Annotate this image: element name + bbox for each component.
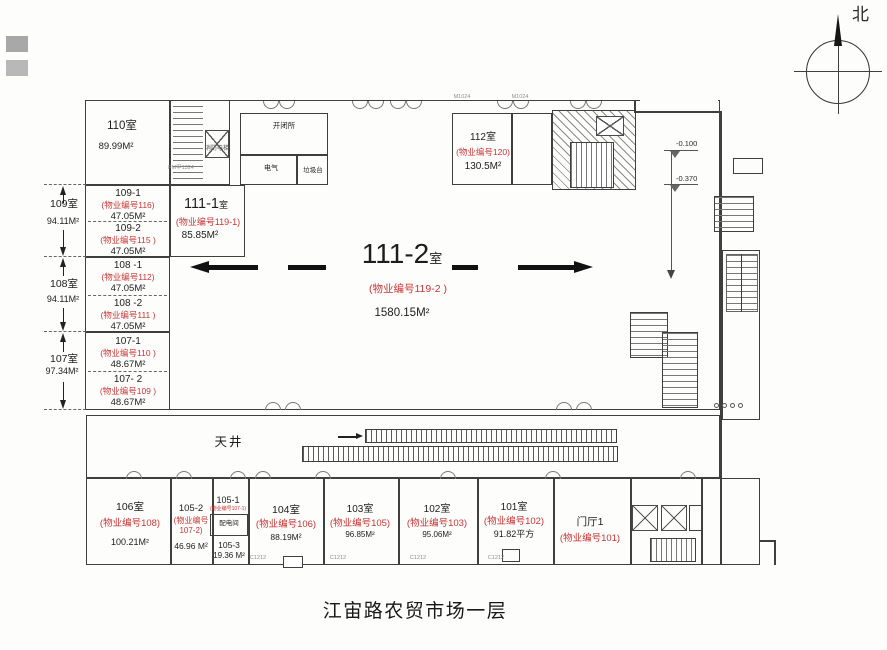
shop-divider: [248, 478, 250, 565]
room-108-2-prop: (物业编号111 ): [101, 311, 156, 320]
room-102-area: 95.06M²: [422, 531, 451, 539]
room-110-name: 110室: [107, 121, 137, 133]
dim-tick: [44, 184, 86, 185]
room-101-name: 101室: [501, 503, 528, 513]
door-code: C1212: [410, 556, 426, 562]
door-code: C1212: [488, 556, 504, 562]
dim-tick: [44, 331, 86, 332]
room-111-1-name: 111-1室: [184, 196, 228, 212]
canopy-arrowhead: [356, 433, 363, 439]
shop-divider: [398, 478, 400, 565]
step-line: [760, 540, 775, 542]
hall-arrow-shaft: [208, 265, 258, 270]
courtyard-label: 天井: [214, 436, 243, 449]
room-102-name: 102室: [424, 505, 451, 515]
shop-divider: [323, 478, 325, 565]
elevator-shaft: [661, 505, 687, 531]
level-minus-0100: -0.100: [676, 140, 697, 148]
room-103-name: 103室: [347, 505, 374, 515]
restroom-stalls-upper: [726, 254, 758, 312]
elevator-shaft: [632, 505, 658, 531]
hall-suffix: 室: [429, 251, 442, 266]
room-108-2-area: 47.05M²: [111, 322, 146, 332]
room-105-2-prop-l2: 107-2): [179, 527, 202, 535]
lobby-prop: (物业编号101): [560, 534, 620, 544]
room-109-1-name: 109-1: [115, 189, 141, 199]
electrical-label: 电气: [264, 165, 278, 172]
north-compass: 北: [790, 0, 887, 125]
page-title: 江宙路农贸市场一层: [323, 602, 508, 621]
elevator-shaft: [205, 130, 229, 158]
side-dim-108-room: 108室: [50, 279, 78, 290]
room-109-2-prop: (物业编号115 ): [100, 236, 156, 245]
shop-divider: [170, 478, 172, 565]
room-105-3-area: 19.36 M²: [213, 552, 245, 560]
dim-arrow-line: [63, 382, 64, 402]
level-minus-0370: -0.370: [676, 175, 697, 183]
side-dim-108-area: 94.11M²: [47, 295, 79, 304]
door-code: C1212: [330, 556, 346, 562]
room-109-2-area: 47.05M²: [111, 247, 146, 257]
compass-horizontal-line: [794, 71, 882, 72]
room-105-2-prop-l1: (物业编号: [174, 517, 209, 525]
room-108-1-name: 108 -1: [114, 261, 142, 271]
canopy-strip-lower: [302, 446, 618, 462]
room-112-annex-outline: [512, 113, 552, 185]
entry-vestibule-box: [283, 556, 303, 568]
room-107-1-name: 107-1: [115, 337, 141, 347]
side-dim-107-room: 107室: [50, 354, 78, 365]
room-111-1-prop: (物业编号119-1): [176, 218, 240, 227]
room-108-divider: [88, 295, 167, 296]
hall-arrow-left-icon: [190, 261, 209, 273]
distribution-label: 配电间: [219, 521, 239, 528]
small-box-101: [502, 549, 520, 562]
dimension-leader: [671, 150, 672, 272]
level-mark-triangle: [670, 151, 680, 158]
level-mark-triangle: [670, 185, 680, 192]
room-107-2-prop: (物业编号109 ): [100, 387, 156, 396]
room-105-1-prop: (物业编号107-1): [210, 507, 246, 512]
top-right-wall: [634, 111, 722, 113]
hall-arrow-shaft: [518, 265, 574, 270]
dim-arrow-down: [60, 400, 66, 409]
room-106-area: 100.21M²: [111, 538, 149, 547]
hall-arrow-right-icon: [574, 261, 593, 273]
dim-tick: [44, 409, 86, 410]
room-107-divider: [88, 371, 167, 372]
room-104-name: 104室: [272, 505, 300, 516]
exterior-stair-topright: [714, 196, 754, 232]
canopy-strip-upper: [365, 429, 617, 443]
room-107-1-area: 48.67M²: [111, 360, 146, 370]
room-108-2-name: 108 -2: [114, 299, 142, 309]
hall-number: 111-2: [362, 238, 429, 269]
room-104-area: 88.19M²: [270, 533, 301, 542]
hall-area: 1580.15M²: [375, 308, 430, 320]
room-107-2-area: 48.67M²: [111, 398, 146, 408]
room-101-area: 91.82平方: [494, 530, 535, 539]
room-111-1-area: 85.85M²: [182, 231, 219, 241]
room-108-1-prop: (物业编号112): [101, 273, 154, 282]
stair-in-block: [570, 142, 614, 188]
room-108-1-area: 47.05M²: [111, 284, 146, 294]
bottom-right-stair: [650, 538, 696, 562]
room-107-2-name: 107- 2: [114, 375, 142, 385]
room-109-2-name: 109-2: [115, 224, 141, 234]
shop-divider: [477, 478, 479, 565]
door-code: C1212: [250, 556, 266, 562]
hall-arrow-dash: [288, 265, 326, 270]
room-105-2-area: 46.96 M²: [174, 542, 208, 551]
floor-plan-canvas: 北: [0, 0, 887, 650]
door-code: FM甲1324: [168, 166, 194, 172]
bottom-right-block-outline: [702, 478, 760, 565]
duct-shaft: [596, 116, 624, 136]
wall-patch: [640, 96, 718, 110]
hall-arrow-dash: [452, 265, 478, 270]
fire-elevator-label: 消防电梯: [205, 146, 229, 152]
room-112-name: 112室: [470, 133, 496, 143]
north-arrow-icon: [834, 14, 842, 46]
room-103-prop: (物业编号105): [330, 519, 390, 529]
room-103-area: 96.85M²: [345, 531, 374, 539]
dim-arrow-line: [63, 340, 64, 352]
step-line: [774, 540, 776, 565]
room-107-1-prop: (物业编号110 ): [100, 349, 156, 358]
side-dim-109-room: 109室: [50, 199, 78, 210]
shop-divider: [553, 478, 555, 565]
room-111-1-number: 111-1: [184, 196, 219, 212]
switch-station-label: 开闭所: [273, 122, 296, 130]
dim-tick: [44, 256, 86, 257]
room-106-prop: (物业编号108): [100, 519, 160, 529]
lobby-name: 门厅1: [577, 517, 604, 528]
side-dim-109-area: 94.11M²: [47, 217, 79, 226]
hall-name: 111-2室: [362, 240, 442, 268]
door-code: M1024: [512, 95, 529, 101]
shaft-box: [689, 505, 702, 531]
leader-arrowhead: [667, 270, 675, 279]
stall-divider: [741, 254, 742, 312]
room-111-1-suffix: 室: [219, 200, 228, 210]
dim-arrow-down: [60, 247, 66, 256]
room-105-3-name: 105-3: [218, 541, 240, 550]
switch-station-outline: [240, 113, 328, 155]
room-109-1-prop: (物业编号116): [101, 201, 154, 210]
room-110-area: 89.99M²: [99, 142, 134, 152]
restroom-stalls-mid: [662, 332, 698, 408]
hall-prop: (物业编号119-2 ): [369, 284, 447, 295]
room-101-prop: (物业编号102): [484, 517, 544, 527]
room-112-prop: (物业编号120): [456, 148, 510, 157]
room-105-1-name: 105-1: [216, 496, 239, 505]
refuse-label: 垃圾台: [303, 168, 323, 175]
room-109-1-area: 47.05M²: [111, 212, 146, 222]
room-112-area: 130.5M²: [465, 162, 502, 172]
room-105-2-name: 105-2: [179, 504, 203, 514]
sink-fixture: [722, 403, 727, 408]
canopy-arrow-line: [338, 436, 356, 438]
side-dim-107-area: 97.34M²: [45, 367, 78, 376]
door-code: M1024: [454, 95, 471, 101]
scan-artifact: [6, 36, 28, 52]
room-104-prop: (物业编号106): [256, 520, 316, 530]
room-106-name: 106室: [116, 502, 144, 513]
dim-arrow-down: [60, 322, 66, 331]
sink-fixture: [730, 403, 735, 408]
room-102-prop: (物业编号103): [407, 519, 467, 529]
small-annex-box: [733, 158, 763, 174]
sink-fixture: [714, 403, 719, 408]
north-label: 北: [852, 6, 869, 23]
sink-fixture: [738, 403, 743, 408]
dim-arrow-line: [63, 265, 64, 276]
scan-artifact: [6, 60, 28, 76]
